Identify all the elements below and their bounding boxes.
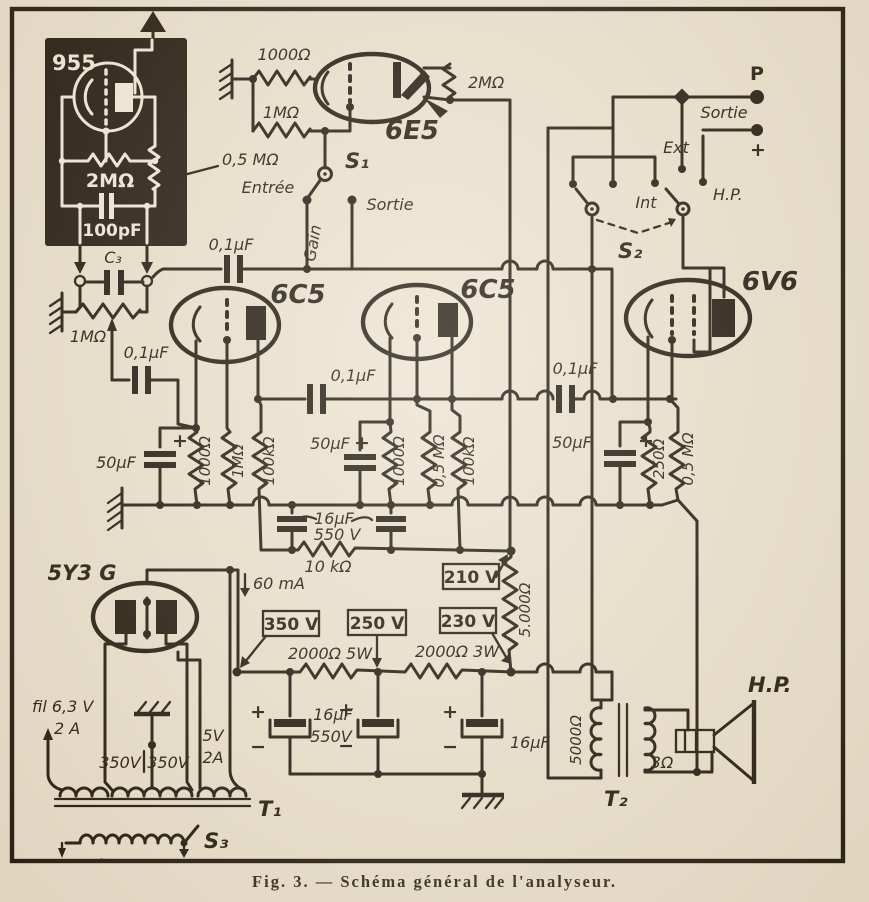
s1-sortie-label: Sortie: [366, 195, 413, 214]
probe-grid-cap-label: 100pF: [82, 221, 141, 241]
plus-terminal-label: +: [750, 139, 766, 161]
c-k1-label: 0,1µF: [124, 343, 170, 362]
t2-primary-label: 5000Ω: [567, 715, 585, 765]
s1-entree-label: Entrée: [242, 178, 295, 197]
figure-caption: Fig. 3. — Schéma général de l'analyseur.: [0, 872, 869, 892]
eye-cathode-resistor-label: 1000Ω: [258, 45, 312, 64]
input-cap-label: 0,1µF: [209, 235, 255, 254]
sortie-terminal-label: Sortie: [700, 103, 747, 122]
capA-minus: −: [250, 736, 266, 758]
v1-label: 6C5: [270, 280, 325, 310]
p-terminal-label: P: [750, 63, 764, 85]
winding-5v: 5V: [202, 726, 224, 745]
capC-value: 16µF: [510, 733, 551, 752]
r1k2-label: 1000Ω: [390, 436, 408, 486]
v250-box: 250 V: [350, 614, 405, 634]
r10k-label: 10 kΩ: [305, 557, 353, 576]
s1-label: S₁: [345, 149, 369, 173]
v350-box: 350 V: [264, 615, 319, 635]
probe-unit-955: 955 2MΩ 100pF 0,5 MΩ: [45, 11, 279, 246]
c-k1b-label: 50µF: [96, 453, 137, 472]
hp-terminal-label: H.P.: [713, 185, 743, 204]
v210-box: 210 V: [444, 568, 499, 588]
r100k2-label: 100kΩ: [460, 436, 478, 485]
v230-box: 230 V: [441, 612, 496, 632]
schematic-figure: 955 2MΩ 100pF 0,5 MΩ C₃ 1MΩ: [0, 0, 869, 902]
capAB-value: 16µF: [313, 705, 354, 724]
filament-label: fil 6,3 V: [32, 697, 94, 716]
probe-c3-label: C₃: [104, 248, 122, 267]
r250-label: 250Ω: [650, 438, 668, 479]
c-k3b-label: 50µF: [552, 433, 593, 452]
int-label: Int: [635, 193, 657, 212]
t1-label: T₁: [258, 797, 282, 821]
voice-coil-impedance: 3Ω: [651, 753, 674, 772]
eye-grid-resistor-label: 1MΩ: [263, 103, 300, 122]
capAB-voltage: 550V: [310, 727, 353, 746]
r1m1-label: 1MΩ: [229, 443, 247, 477]
capA-plus: +: [250, 701, 266, 723]
r5000-label: 5.000Ω: [516, 582, 534, 637]
probe-grid-resistor-label: 2MΩ: [86, 170, 134, 192]
schematic-page: 955 2MΩ 100pF 0,5 MΩ C₃ 1MΩ: [0, 0, 869, 902]
winding-350a: 350V: [99, 753, 142, 772]
winding-350b: 350V: [147, 753, 190, 772]
c-c12-label: 0,1µF: [331, 366, 377, 385]
signal-bus: 0,1µF: [153, 235, 613, 399]
eye-plate-resistor-label: 2MΩ: [468, 73, 505, 92]
winding-5a: 2A: [202, 748, 223, 767]
gain-label: Gain: [300, 223, 325, 263]
s2-label: S₂: [618, 239, 643, 263]
ground-bus: [108, 488, 662, 530]
rectifier-label: 5Y3 G: [48, 561, 117, 585]
c-k2b-label: 50µF: [310, 434, 351, 453]
v3-label: 6V6: [742, 267, 798, 297]
ac-symbol: ~: [96, 849, 112, 871]
r5w-label: 2000Ω 5W: [288, 644, 373, 663]
probe-pot2-label: 1MΩ: [70, 327, 107, 346]
ext-label: Ext: [663, 138, 690, 157]
r05m3-label: 0,5 MΩ: [679, 432, 697, 486]
probe-pot-label: 0,5 MΩ: [222, 150, 279, 169]
speaker-hp-label: H.P.: [748, 673, 792, 697]
probe-tube-label: 955: [52, 51, 96, 75]
r1k1-label: 1000Ω: [196, 436, 214, 486]
r05m2-label: 0,5 MΩ: [430, 434, 448, 488]
filament-amps: 2 A: [54, 719, 80, 738]
output-transformer-speaker: 5000Ω T₂ 3Ω H.P.: [567, 673, 792, 811]
r100k1-label: 100kΩ: [260, 436, 278, 485]
bplus-rail: 2000Ω 5W 2000Ω 3W + − + − 16µF 550V + − …: [233, 642, 613, 808]
t2-label: T₂: [604, 787, 628, 811]
v2-label: 6C5: [460, 275, 515, 305]
s3-label: S₃: [204, 829, 228, 853]
plus1: +: [172, 430, 188, 452]
output-terminals-s2: P Sortie + Ext Int H.P. S₂: [548, 63, 766, 297]
current-label: 60 mA: [253, 574, 305, 593]
c-c23-label: 0,1µF: [553, 359, 599, 378]
capC-plus: +: [442, 701, 458, 723]
capC-minus: −: [442, 736, 458, 758]
r3w-label: 2000Ω 3W: [415, 642, 500, 661]
eye-tube-label: 6E5: [385, 116, 439, 146]
plus2: +: [354, 432, 370, 454]
